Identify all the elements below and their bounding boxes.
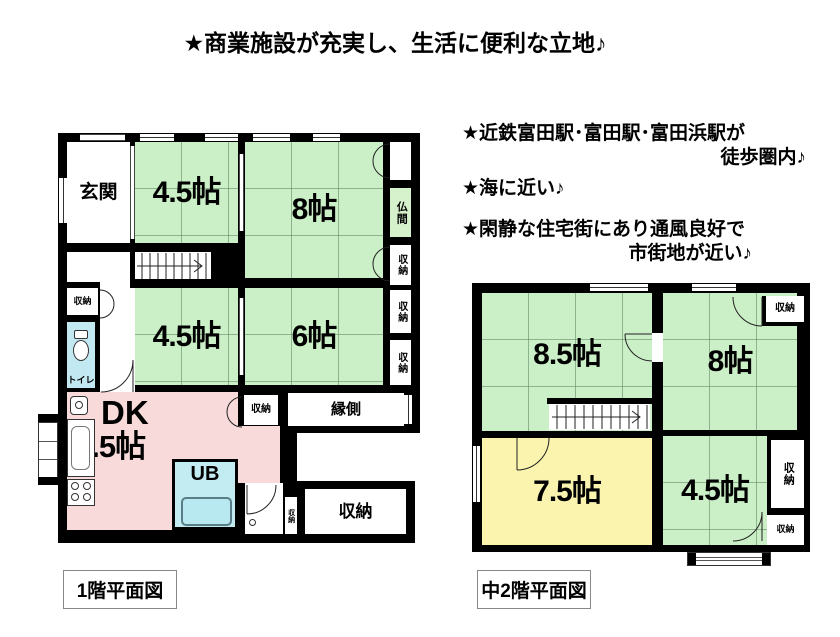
storage-f2-right-bottom-label: 収納	[776, 525, 794, 534]
engawa-window	[404, 395, 412, 424]
floor1-caption: 1階平面図	[63, 570, 177, 609]
floorplan-page: ★商業施設が充実し、生活に便利な立地♪ ★近鉄富田駅･富田駅･富田浜駅が 徒歩圏…	[0, 0, 840, 637]
kitchen-counter-sink-icon	[71, 426, 90, 470]
floor2-caption: 中2階平面図	[477, 570, 591, 609]
entrance-sliding-door	[80, 134, 125, 141]
bathtub-icon	[181, 497, 232, 526]
window-f2-left	[473, 446, 480, 502]
window-f2-bottom	[687, 552, 771, 566]
storage-right-3: 収納	[390, 340, 411, 385]
room-tatami-45-mid: 4.5帖	[135, 288, 238, 385]
storage-f2-right-tall: 収納	[771, 440, 804, 508]
room-tatami-45-top: 4.5帖	[135, 142, 238, 243]
note-sea: ★海に近い♪	[462, 177, 810, 201]
room-genkan: 玄関	[67, 142, 130, 243]
room-butsuma-label: 仏間	[395, 201, 407, 225]
storage-thin: 収納	[285, 497, 297, 534]
stove-burner-icon	[83, 482, 91, 490]
storage-f2-topright-label: 収納	[775, 304, 795, 315]
note-quiet: ★閑静な住宅街にあり通風良好で	[462, 218, 810, 242]
partition-45-8	[239, 154, 244, 231]
room-genkan-label: 玄関	[79, 183, 117, 203]
room-tatami-45-mid-label: 4.5帖	[153, 321, 221, 353]
storage-mid-label: 収納	[251, 405, 271, 416]
selling-points: ★近鉄富田駅･富田駅･富田浜駅が 徒歩圏内♪ ★海に近い♪ ★閑静な住宅街にあり…	[462, 122, 810, 266]
floor1-plan: 玄関 4.5帖 8帖 仏間 収納 収納 収納 収納 トイレ	[38, 130, 430, 570]
room-tatami-75-label: 7.5帖	[533, 476, 601, 508]
hallway-join	[100, 279, 130, 288]
storage-right-2-label: 収納	[395, 301, 406, 323]
window-top-2	[205, 134, 238, 141]
room-tatami-45-f2: 4.5帖	[663, 436, 767, 545]
note-stations-2: 徒歩圏内♪	[462, 146, 810, 170]
stairs-floor2	[549, 404, 650, 430]
window-top-1	[140, 134, 174, 141]
kitchen-sink-drain-icon	[75, 401, 83, 409]
room-butsuma: 仏間	[390, 188, 411, 237]
washroom	[245, 483, 283, 534]
room-tatami-8-f2-label: 8帖	[708, 346, 753, 378]
room-tatami-8: 8帖	[245, 142, 383, 278]
storage-right-1-label: 収納	[395, 254, 406, 276]
storage-left: 収納	[67, 288, 98, 315]
partition-45-6	[239, 298, 244, 375]
closet-top-right	[390, 142, 411, 180]
window-genkan-left	[59, 178, 67, 223]
bay-window	[38, 422, 58, 478]
toilet-tank-icon	[74, 330, 88, 339]
room-toilet-label: トイレ	[67, 376, 95, 385]
stove-burner-icon	[71, 482, 79, 490]
hallway-1	[67, 252, 130, 282]
window-top-4	[313, 134, 340, 141]
room-dk-extension	[238, 426, 280, 483]
stairs-floor1	[135, 252, 211, 279]
washroom-fixture-icon	[249, 519, 256, 526]
room-engawa: 縁側	[288, 393, 404, 426]
room-engawa-label: 縁側	[331, 402, 361, 418]
page-title: ★商業施設が充実し、生活に便利な立地♪	[0, 24, 790, 58]
note-quiet-2: 市街地が近い♪	[462, 242, 810, 266]
floor2-caption-label: 中2階平面図	[481, 576, 587, 603]
room-ub-label: UB	[191, 464, 220, 485]
partition-genkan-45	[130, 146, 135, 239]
storage-right-1: 収納	[390, 245, 411, 285]
bay-window-cap-top	[38, 414, 58, 422]
storage-left-label: 収納	[73, 297, 91, 306]
room-tatami-6-label: 6帖	[292, 321, 337, 353]
room-toilet: トイレ	[67, 322, 95, 388]
storage-mid: 収納	[244, 395, 278, 425]
storage-right-2: 収納	[390, 290, 411, 333]
room-tatami-45-top-label: 4.5帖	[153, 177, 221, 209]
stove-burner-icon	[71, 493, 79, 501]
storage-f2-right-tall-label: 収納	[782, 462, 794, 486]
hallway-2	[100, 288, 135, 392]
floor1-caption-label: 1階平面図	[77, 576, 164, 603]
storage-right-3-label: 収納	[395, 352, 406, 374]
room-tatami-85-label: 8.5帖	[533, 339, 601, 371]
storage-big-label: 収納	[339, 503, 373, 521]
room-tatami-45-f2-label: 4.5帖	[681, 475, 749, 507]
window-top-3	[253, 134, 290, 141]
note-stations: ★近鉄富田駅･富田駅･富田浜駅が	[462, 122, 810, 146]
window-f2-top-1	[590, 284, 648, 291]
window-f2-top-2	[692, 284, 736, 291]
room-tatami-8-label: 8帖	[292, 194, 337, 226]
doorway-midwall	[652, 333, 663, 362]
bay-window-cap-bottom	[38, 477, 58, 485]
toilet-bowl-icon	[73, 340, 89, 361]
storage-big: 収納	[305, 489, 406, 534]
storage-f2-right-bottom: 収納	[767, 515, 804, 545]
stove-burner-icon	[83, 493, 91, 501]
floor2-plan: 8.5帖 8帖 収納 7.5帖 4.5帖 収納 収納	[460, 280, 840, 580]
storage-f2-topright: 収納	[762, 296, 804, 326]
room-tatami-75: 7.5帖	[482, 438, 652, 545]
storage-thin-label: 収納	[287, 509, 294, 523]
room-ub: UB	[172, 459, 238, 530]
room-tatami-6: 6帖	[245, 288, 383, 385]
